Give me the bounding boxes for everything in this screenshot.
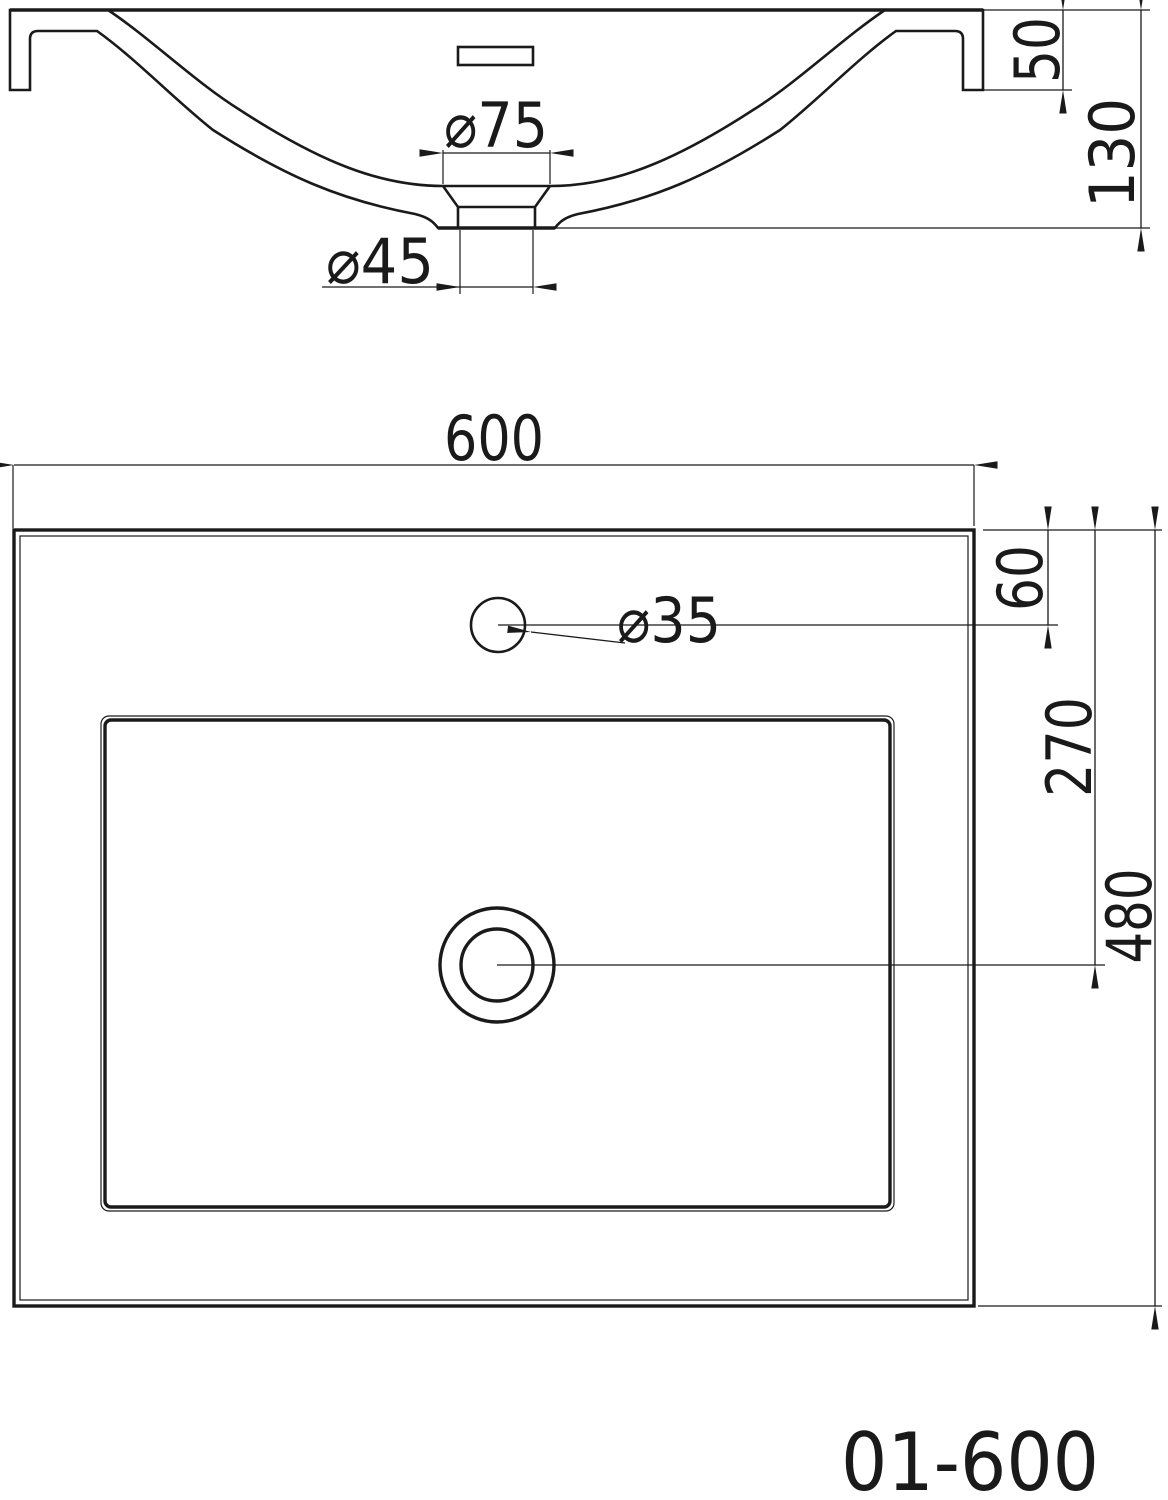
dim-label-faucet-hole: ⌀35 (617, 584, 721, 657)
technical-drawing-canvas: ⌀75 ⌀45 50 130 600 ⌀35 60 (0, 0, 1168, 1500)
bowl-inner-rect-outer-line (101, 716, 894, 1211)
overflow-slot (458, 47, 533, 65)
dim-label-drain-recess: ⌀75 (444, 89, 548, 162)
drawing-sheet: ⌀75 ⌀45 50 130 600 ⌀35 60 (0, 0, 1168, 1500)
basin-outer-rect (14, 530, 974, 1306)
dim-label-rim-height: 50 (1001, 17, 1074, 83)
basin-wall-section-left (10, 10, 458, 228)
leader-line-d35 (531, 632, 625, 643)
dim-label-overall-depth: 480 (1093, 869, 1166, 964)
dim-label-drain-offset: 270 (1033, 697, 1106, 797)
dim-label-drain-hole: ⌀45 (326, 225, 434, 298)
basin-wall-section-right (535, 10, 983, 228)
model-number-label: 01-600 (841, 1416, 1099, 1500)
top-plan-view: 600 ⌀35 60 270 480 (13, 402, 1166, 1306)
bowl-inner-rect (105, 720, 890, 1207)
dim-label-overall-width: 600 (444, 402, 544, 475)
dim-label-overall-height: 130 (1076, 98, 1149, 208)
front-section-view: ⌀75 ⌀45 50 130 (10, 10, 1150, 298)
dim-label-faucet-offset: 60 (984, 545, 1057, 611)
